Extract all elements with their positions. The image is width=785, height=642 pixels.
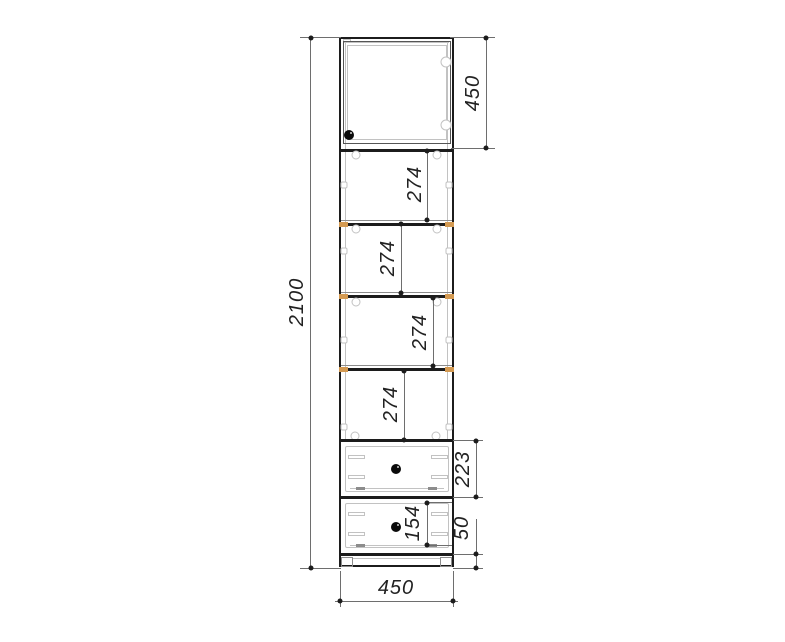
- dim-line: [433, 296, 434, 368]
- door-knob: [344, 130, 354, 140]
- drawer-bottom-fitting: [356, 487, 365, 490]
- dim-marker: [431, 364, 436, 369]
- cam-fitting: [352, 225, 361, 234]
- dim-label-door-height: 450: [463, 63, 483, 123]
- divider-line: [339, 496, 454, 499]
- dim-marker: [399, 222, 404, 227]
- cam-fitting: [433, 151, 442, 160]
- divider-line: [339, 553, 454, 556]
- divider-line: [339, 439, 454, 442]
- dim-label-compartment-4: 274: [381, 374, 401, 434]
- shelf-top-line: [341, 220, 452, 221]
- dim-line: [404, 369, 405, 442]
- witness-line: [300, 568, 341, 569]
- plinth-foot-left: [341, 557, 353, 567]
- dim-marker: [425, 218, 430, 223]
- shelf-edge-band-left: [339, 367, 348, 372]
- dim-label-overall-width: 450: [356, 578, 436, 598]
- dim-line: [427, 501, 428, 547]
- cam-fitting: [433, 225, 442, 234]
- dim-marker: [431, 296, 436, 301]
- witness-line: [428, 502, 452, 503]
- dim-line: [427, 149, 428, 221]
- shelf-edge-band-right: [445, 367, 454, 372]
- shelf-top-line: [341, 292, 452, 293]
- dim-marker: [399, 291, 404, 296]
- dim-line: [476, 439, 477, 499]
- witness-line: [428, 545, 452, 546]
- plinth-front-line: [353, 558, 440, 559]
- dim-marker: [474, 495, 479, 500]
- dim-marker: [484, 146, 489, 151]
- dim-marker: [338, 599, 343, 604]
- dim-marker: [425, 543, 430, 548]
- drawer-slide: [348, 455, 365, 459]
- dim-label-compartment-1: 274: [405, 154, 425, 214]
- shelf-pin: [446, 248, 453, 255]
- shelf-pin: [341, 248, 348, 255]
- dim-marker: [474, 566, 479, 571]
- cam-fitting: [352, 298, 361, 307]
- dim-line: [486, 37, 487, 149]
- witness-line: [453, 568, 483, 569]
- cam-fitting: [352, 151, 361, 160]
- technical-drawing: 2100 450 274 274 274 274: [0, 0, 785, 642]
- shelf-pin: [341, 337, 348, 344]
- drawer-slide: [431, 512, 448, 516]
- plinth-foot-right: [440, 557, 452, 567]
- drawer-bottom-fitting: [356, 544, 365, 547]
- witness-line: [300, 37, 341, 38]
- dim-label-compartment-2: 274: [378, 228, 398, 288]
- drawer-slide: [431, 475, 448, 479]
- drawer-slide: [431, 532, 448, 536]
- shelf-pin: [341, 424, 348, 431]
- dim-label-compartment-3: 274: [410, 302, 430, 362]
- dim-line: [335, 601, 458, 602]
- dim-line: [310, 37, 311, 569]
- dim-marker: [425, 149, 430, 154]
- dim-label-drawer-front: 223: [453, 439, 473, 499]
- dim-label-plinth: 50: [452, 498, 472, 558]
- dim-marker: [474, 552, 479, 557]
- drawer-slide: [348, 512, 365, 516]
- drawer-slide: [348, 532, 365, 536]
- shelf-edge-band-right: [445, 294, 454, 299]
- shelf-edge-band-left: [339, 222, 348, 227]
- door-inner-edge: [347, 45, 447, 140]
- dim-marker: [309, 566, 314, 571]
- drawer-knob: [391, 464, 401, 474]
- drawer-bottom-fitting: [428, 487, 437, 490]
- door-hinge-bottom: [441, 120, 452, 131]
- dim-marker: [484, 36, 489, 41]
- shelf-pin: [446, 424, 453, 431]
- dim-line: [476, 519, 477, 569]
- shelf-pin: [446, 182, 453, 189]
- shelf-pin: [446, 337, 453, 344]
- dim-marker: [474, 439, 479, 444]
- door-hinge-top: [441, 57, 452, 68]
- drawer-slide: [348, 475, 365, 479]
- dim-marker: [402, 438, 407, 443]
- shelf-edge-band-left: [339, 294, 348, 299]
- dim-label-drawer-box: 154: [403, 493, 423, 553]
- drawer-knob: [391, 522, 401, 532]
- dim-label-overall-height: 2100: [287, 262, 307, 342]
- dim-marker: [425, 501, 430, 506]
- shelf-edge-band-right: [445, 222, 454, 227]
- drawer-slide: [431, 455, 448, 459]
- dim-marker: [402, 369, 407, 374]
- dim-line: [401, 222, 402, 295]
- dim-marker: [451, 599, 456, 604]
- shelf-pin: [341, 182, 348, 189]
- dim-marker: [309, 36, 314, 41]
